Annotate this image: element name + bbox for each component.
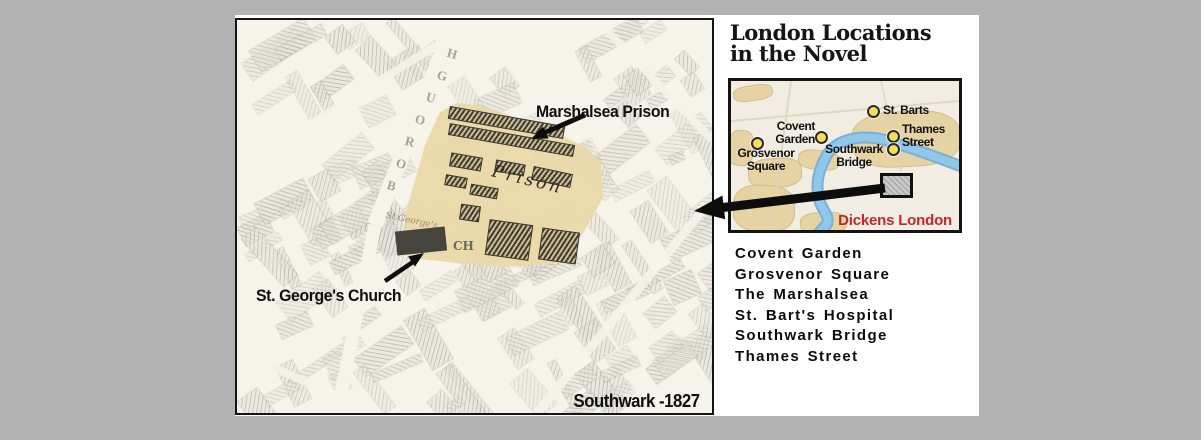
location-item: Covent Garden [735, 244, 894, 265]
location-item: Southwark Bridge [735, 326, 894, 347]
inset-label-text: Grosvenor [731, 147, 801, 160]
panel-title-line2: in the Novel [730, 43, 931, 64]
page: Prison St George's CH H G U O R O B Mars… [0, 0, 1201, 440]
location-item: The Marshalsea [735, 285, 894, 306]
map-caption: Southwark -1827 [574, 391, 700, 412]
panel-title-line1: London Locations [730, 22, 931, 43]
inset-label-st-barts: St. Barts [883, 104, 929, 117]
inset-label-text: Thames [902, 123, 945, 136]
marker-st-barts [867, 105, 880, 118]
london-overview-inset-map: St. Barts Covent Garden Grosvenor Square… [728, 78, 962, 233]
inset-label-text: Garden [759, 133, 815, 146]
inset-label-text: Street [902, 136, 945, 149]
marshalsea-arrow-icon [531, 115, 585, 139]
inset-label-thames-street: Thames Street [902, 123, 945, 148]
location-item: St. Bart's Hospital [735, 306, 894, 327]
location-item: Grosvenor Square [735, 265, 894, 286]
inset-label-grosvenor-square: Grosvenor Square [731, 147, 801, 172]
inset-label-southwark-bridge: Southwark Bridge [809, 143, 899, 168]
location-item: Thames Street [735, 347, 894, 368]
inset-label-text: Bridge [809, 156, 899, 169]
inset-label-text: Covent [759, 120, 815, 133]
inset-map-content: St. Barts Covent Garden Grosvenor Square… [731, 81, 959, 230]
inset-label-text: Square [731, 160, 801, 173]
inset-label-covent-garden: Covent Garden [759, 120, 815, 145]
location-list: Covent Garden Grosvenor Square The Marsh… [735, 244, 894, 367]
panel-title: London Locations in the Novel [730, 22, 931, 64]
inset-label-text: St. Barts [883, 103, 929, 117]
callout-arrows [237, 20, 712, 413]
church-arrow-icon [385, 253, 424, 281]
inset-legend: Dickens London [838, 212, 952, 229]
marker-thames-street [887, 130, 900, 143]
historical-map-southwark: Prison St George's CH H G U O R O B Mars… [235, 18, 714, 415]
southwark-highlight-square [880, 173, 913, 198]
inset-label-text: Southwark [809, 143, 899, 156]
novel-locations-panel: London Locations in the Novel [712, 15, 979, 416]
